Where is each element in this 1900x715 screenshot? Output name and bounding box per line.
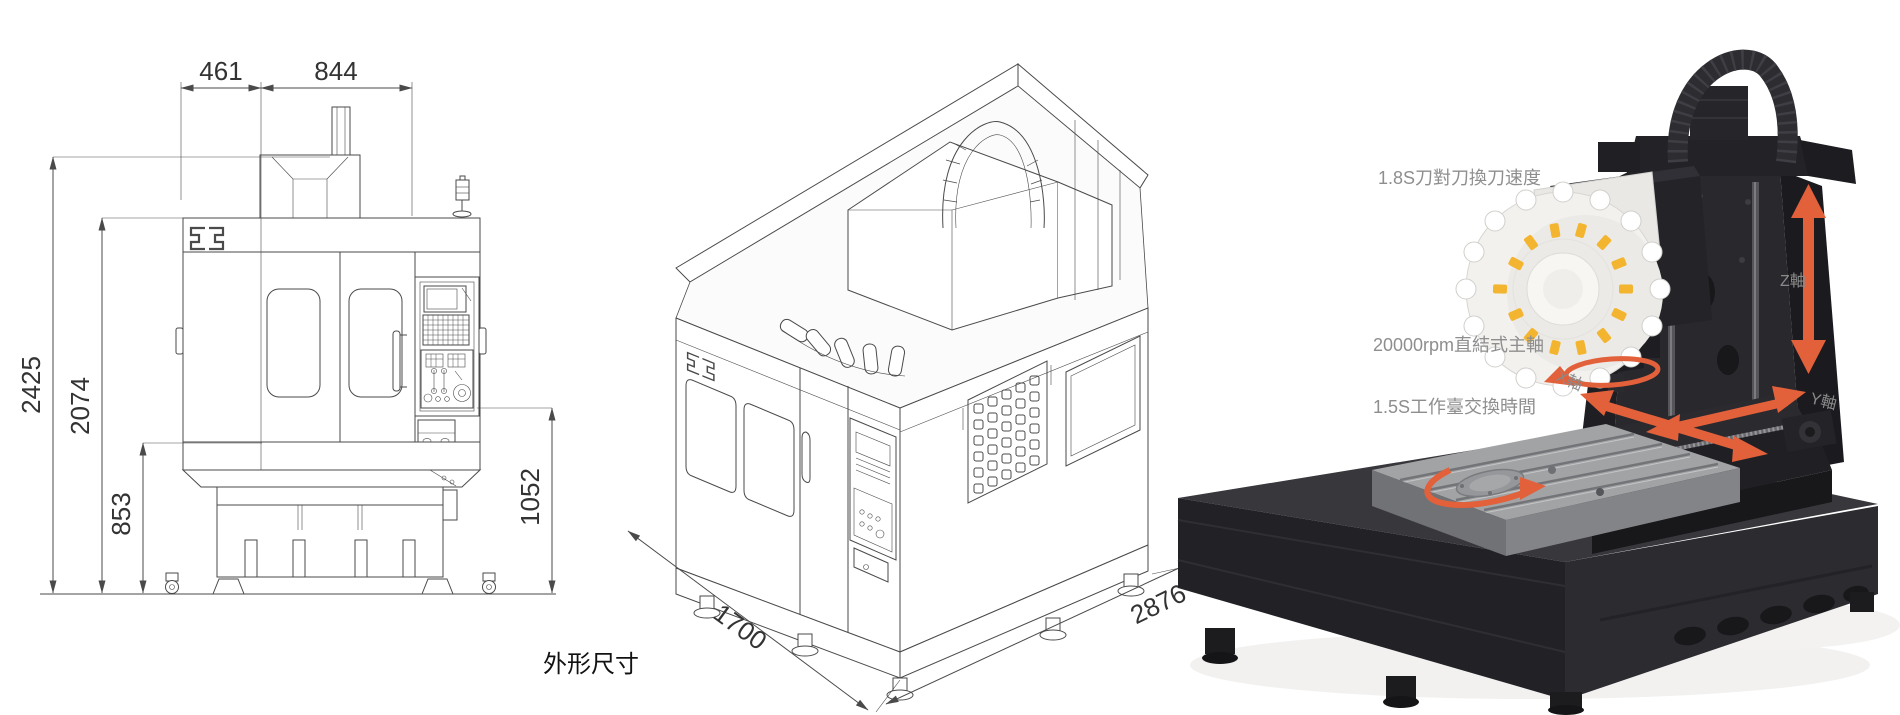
dim-2425: 2425	[16, 356, 46, 414]
dim-1052: 1052	[515, 468, 545, 526]
control-pendant	[415, 277, 479, 416]
tool-magazine-disc	[1456, 182, 1670, 396]
diagram-canvas: 461 844 2425 2074 853 1052	[0, 0, 1900, 715]
dim-461: 461	[199, 56, 242, 86]
machine-dimension-diagram: 461 844 2425 2074 853 1052	[0, 0, 1900, 715]
label-z-axis: Z軸	[1780, 272, 1806, 290]
front-view-drawing: 461 844 2425 2074 853 1052	[16, 56, 556, 594]
dim-2074: 2074	[65, 377, 95, 435]
signal-tower	[453, 176, 471, 217]
iso-pendant	[850, 418, 896, 582]
caster-right	[483, 573, 496, 594]
annotation-tool-change: 1.8S刀對刀換刀速度	[1378, 168, 1541, 188]
annotation-spindle: 20000rpm直結式主軸	[1373, 335, 1544, 355]
annotation-pallet: 1.5S工作臺交換時間	[1373, 397, 1536, 417]
caster-left	[166, 573, 179, 594]
dim-844: 844	[314, 56, 357, 86]
isometric-drawing: 1700 2876 外形尺寸	[543, 64, 1198, 712]
dim-853: 853	[106, 492, 136, 535]
machine-photo: 1.8S刀對刀換刀速度 20000rpm直結式主軸 1.5S工作臺交換時間 Z軸…	[1178, 60, 1900, 715]
outline-dimensions-caption: 外形尺寸	[543, 651, 639, 678]
